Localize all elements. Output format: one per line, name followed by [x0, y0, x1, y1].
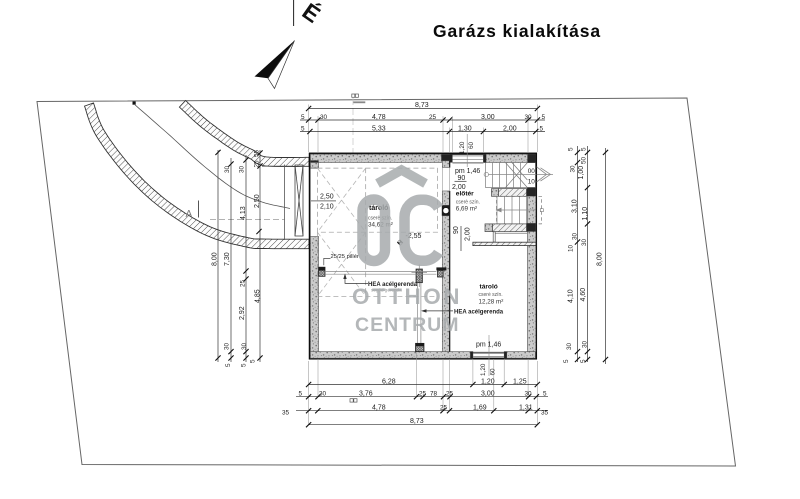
svg-text:30: 30 [319, 391, 327, 398]
svg-text:10: 10 [568, 244, 575, 252]
svg-text:4,60: 4,60 [580, 288, 587, 302]
svg-text:A: A [186, 209, 193, 220]
svg-text:3,10: 3,10 [572, 199, 579, 213]
svg-text:5: 5 [563, 359, 570, 363]
svg-text:cserė szín.: cserė szín. [456, 199, 480, 205]
svg-text:5: 5 [301, 114, 305, 121]
svg-text:30: 30 [525, 114, 533, 121]
svg-text:25/25 pillér: 25/25 pillér [331, 254, 359, 260]
svg-text:1,20: 1,20 [459, 141, 466, 154]
svg-text:90: 90 [453, 226, 460, 234]
svg-text:1,31: 1,31 [519, 405, 533, 412]
svg-text:előtér: előtér [456, 190, 474, 197]
svg-text:cserė szín.: cserė szín. [479, 292, 503, 298]
svg-text:1,00: 1,00 [578, 166, 585, 180]
svg-text:tároló: tároló [480, 284, 498, 291]
svg-text:5: 5 [299, 391, 303, 398]
svg-text:10: 10 [528, 179, 536, 186]
svg-text:30: 30 [570, 165, 577, 173]
svg-text:1,20: 1,20 [481, 378, 495, 385]
svg-text:25: 25 [419, 391, 427, 398]
svg-text:5: 5 [301, 125, 305, 132]
svg-text:5: 5 [249, 359, 256, 363]
svg-text:25: 25 [239, 279, 246, 287]
svg-text:30: 30 [224, 342, 231, 350]
svg-text:8,73: 8,73 [410, 418, 424, 425]
svg-text:CENTRUM: CENTRUM [355, 314, 460, 336]
svg-text:30: 30 [581, 238, 588, 246]
svg-text:8,00: 8,00 [212, 252, 219, 266]
svg-text:30: 30 [582, 340, 589, 348]
svg-text:30: 30 [525, 391, 533, 398]
svg-text:4,13: 4,13 [240, 206, 247, 220]
svg-text:12,28 m²: 12,28 m² [479, 299, 504, 306]
svg-text:30: 30 [239, 165, 246, 173]
svg-text:00: 00 [528, 168, 536, 175]
svg-text:5,33: 5,33 [372, 125, 386, 132]
svg-text:30: 30 [224, 165, 231, 173]
svg-text:6,28: 6,28 [382, 378, 396, 385]
svg-text:8,00: 8,00 [597, 252, 604, 266]
svg-text:5: 5 [540, 125, 544, 132]
svg-text:25: 25 [440, 405, 448, 412]
svg-text:35: 35 [282, 410, 290, 417]
svg-text:5: 5 [542, 114, 546, 121]
svg-text:1,20: 1,20 [480, 363, 487, 376]
svg-text:2,50: 2,50 [254, 194, 261, 208]
svg-text:50: 50 [581, 156, 588, 164]
svg-text:2,00: 2,00 [503, 125, 517, 132]
svg-text:3,00: 3,00 [481, 114, 495, 121]
svg-text:30: 30 [320, 114, 328, 121]
svg-text:4,10: 4,10 [568, 289, 575, 303]
svg-text:3,76: 3,76 [359, 391, 373, 398]
svg-text:30: 30 [572, 232, 579, 240]
svg-text:25: 25 [446, 391, 454, 398]
svg-text:5: 5 [543, 391, 547, 398]
svg-text:60: 60 [468, 141, 475, 149]
svg-text:78: 78 [430, 391, 438, 398]
svg-text:6,69 m²: 6,69 m² [456, 206, 477, 213]
svg-text:2,92: 2,92 [239, 306, 246, 320]
svg-text:30: 30 [566, 342, 573, 350]
svg-text:5: 5 [580, 359, 587, 363]
svg-text:4,85: 4,85 [254, 289, 261, 303]
svg-text:OTTHON: OTTHON [352, 284, 462, 309]
svg-text:3,00: 3,00 [481, 391, 495, 398]
svg-text:HEA acélgerenda: HEA acélgerenda [454, 309, 504, 315]
svg-text:30: 30 [241, 342, 248, 350]
svg-text:55: 55 [253, 149, 260, 157]
svg-text:2,00: 2,00 [465, 227, 472, 241]
svg-text:5: 5 [225, 363, 232, 367]
svg-text:60: 60 [489, 368, 496, 376]
svg-text:1,30: 1,30 [458, 125, 472, 132]
svg-text:4,78: 4,78 [372, 114, 386, 121]
svg-text:4,78: 4,78 [372, 405, 386, 412]
svg-text:35: 35 [541, 410, 549, 417]
svg-text:5: 5 [240, 363, 247, 367]
svg-text:2,00: 2,00 [452, 184, 466, 191]
svg-text:5: 5 [581, 147, 588, 151]
svg-text:25: 25 [253, 160, 260, 168]
svg-text:8,73: 8,73 [415, 102, 429, 109]
svg-text:1,25: 1,25 [513, 378, 527, 385]
svg-text:2,50: 2,50 [320, 194, 334, 201]
svg-text:1,10: 1,10 [582, 207, 589, 221]
svg-text:90: 90 [458, 175, 466, 182]
svg-text:Garázs kialakítása: Garázs kialakítása [433, 21, 601, 41]
svg-text:2,10: 2,10 [320, 204, 334, 211]
svg-text:7,30: 7,30 [224, 252, 231, 266]
svg-text:5: 5 [568, 147, 575, 151]
svg-text:25: 25 [429, 114, 437, 121]
svg-text:1,69: 1,69 [473, 405, 487, 412]
svg-text:pm 1,46: pm 1,46 [476, 342, 501, 349]
